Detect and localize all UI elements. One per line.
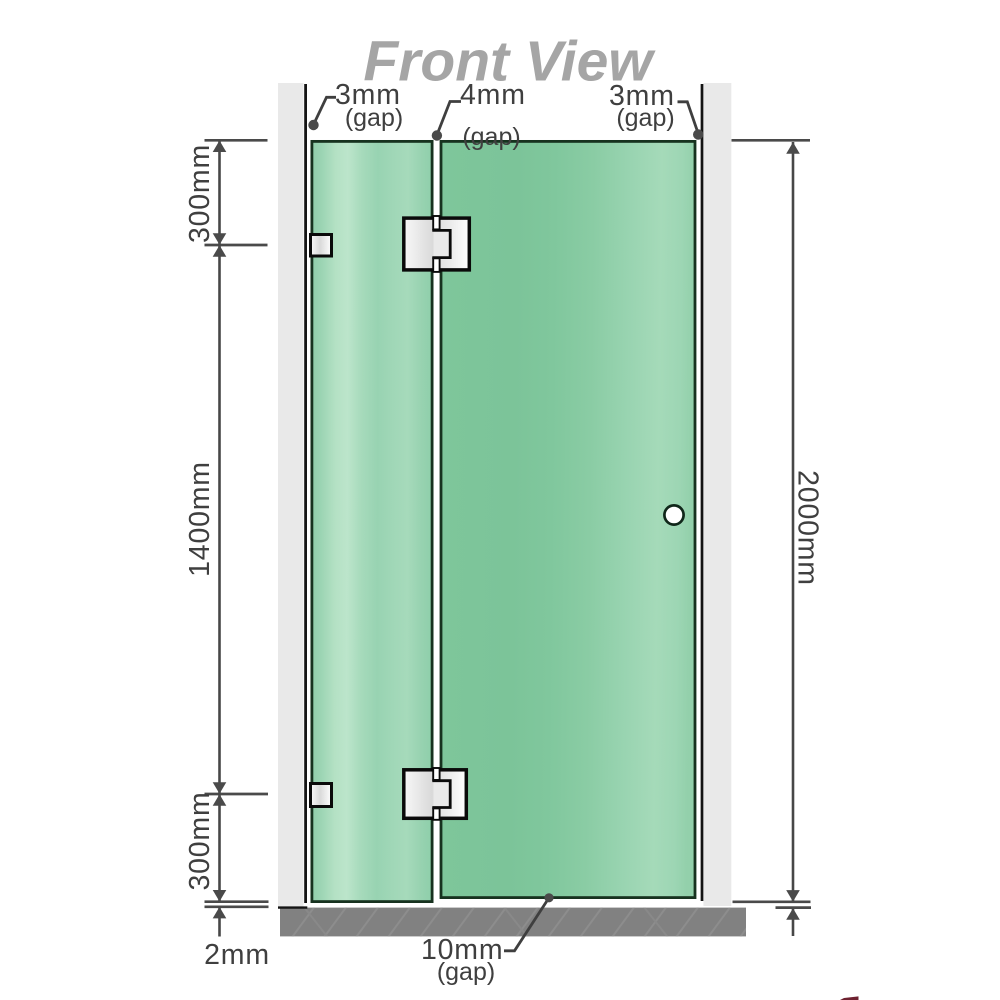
- svg-text:(gap): (gap): [437, 958, 495, 986]
- svg-text:(gap): (gap): [462, 123, 520, 151]
- svg-text:300mm: 300mm: [184, 144, 216, 243]
- svg-text:300mm: 300mm: [184, 791, 216, 890]
- svg-text:1400mm: 1400mm: [184, 461, 216, 577]
- svg-text:2mm: 2mm: [204, 939, 270, 971]
- svg-text:4mm: 4mm: [460, 79, 526, 111]
- svg-text:2000mm: 2000mm: [792, 470, 824, 586]
- svg-text:(gap): (gap): [616, 104, 674, 132]
- svg-text:(gap): (gap): [345, 104, 403, 132]
